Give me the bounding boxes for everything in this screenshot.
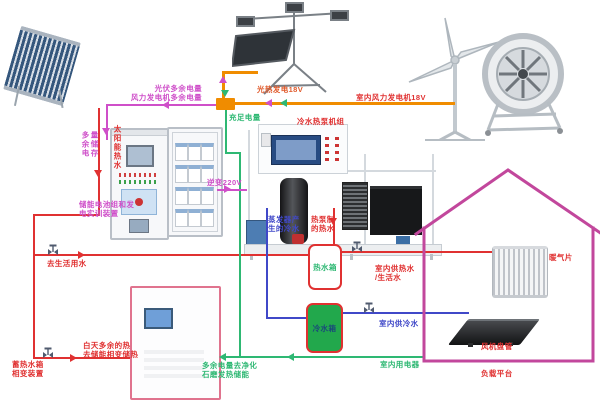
radiator bbox=[492, 246, 548, 298]
wind-source-fan bbox=[468, 26, 576, 138]
valve-icon bbox=[47, 243, 59, 257]
cabinet-small-screen bbox=[129, 219, 149, 233]
label-pv-wind-surplus: 光伏多余电量 风力发电机多余电量 bbox=[126, 84, 202, 102]
arrow-left-magenta bbox=[162, 101, 169, 109]
junction-box bbox=[216, 98, 235, 110]
label-inverter-220v: 逆变220V bbox=[207, 178, 242, 187]
panel-red-dot bbox=[135, 198, 143, 206]
phase-change-cabinet bbox=[130, 286, 221, 400]
wire-tracker-18v bbox=[222, 71, 258, 74]
arrow-down-magenta bbox=[102, 128, 110, 135]
label-heat-pump-unit: 冷水热泵机组 bbox=[297, 117, 344, 126]
label-indoor-appliances: 室内用电器 bbox=[380, 360, 420, 369]
cabinet-leds-green bbox=[119, 180, 159, 184]
arrow-right-red bbox=[70, 354, 77, 362]
label-indoor-hot-water: 室内供热水 /生活水 bbox=[375, 264, 415, 282]
label-load-platform: 负载平台 bbox=[481, 369, 513, 378]
pipe-solar-down bbox=[98, 108, 100, 215]
pcm-screen bbox=[144, 308, 173, 329]
bench-gauge bbox=[261, 133, 271, 147]
fan-coil-foot bbox=[468, 343, 473, 347]
arrow-left-green bbox=[219, 353, 226, 361]
label-radiator: 暖气片 bbox=[549, 253, 573, 262]
valve-icon bbox=[363, 301, 375, 315]
valve-icon bbox=[42, 346, 54, 360]
cabinet-screen bbox=[126, 145, 154, 167]
arrow-left-green bbox=[287, 353, 294, 361]
bench-buttons bbox=[335, 137, 339, 161]
battery-shelf bbox=[175, 140, 213, 160]
label-daytime-surplus-heat: 白天多余的热 去储能相变储热 bbox=[83, 341, 138, 359]
cold-water-tank: 冷水箱 bbox=[306, 303, 343, 353]
arrow-left-magenta bbox=[265, 99, 272, 107]
cold-water-tank-label: 冷水箱 bbox=[313, 324, 337, 333]
arrow-down-green bbox=[221, 90, 229, 97]
label-indoor-wind-18v: 室内风力发电机18V bbox=[356, 93, 426, 102]
label-evaporator-cold-water: 蒸发器产 生的冷水 bbox=[268, 215, 300, 233]
label-to-domestic-water: 去生活用水 bbox=[47, 259, 87, 268]
bench-screen bbox=[271, 135, 321, 165]
label-surplus-to-purify: 多余电量去净化 石磨发热储能 bbox=[202, 361, 257, 379]
pcm-vents bbox=[144, 348, 204, 378]
battery-shelf bbox=[175, 206, 213, 226]
blue-unit bbox=[246, 220, 268, 246]
label-solar-hot-water: 太阳能热水 bbox=[113, 125, 122, 185]
label-battery-device: 储能电池组和发 电实训装置 bbox=[79, 200, 134, 218]
label-thermal-storage-device: 蓄热水箱 相变装置 bbox=[12, 360, 44, 378]
red-pump bbox=[292, 234, 304, 244]
bench-leg bbox=[350, 254, 353, 260]
label-surplus-storage: 多余电量储存 bbox=[81, 131, 99, 160]
hot-water-tank-label: 热水箱 bbox=[313, 263, 337, 272]
valve-icon bbox=[351, 240, 363, 254]
arrow-right-red bbox=[78, 251, 85, 259]
wire-inverter-220v bbox=[217, 189, 247, 191]
hot-water-tank: 热水箱 bbox=[308, 244, 342, 290]
solar-collector bbox=[4, 28, 80, 110]
label-fan-coil: 风机盘管 bbox=[481, 342, 513, 351]
collector-tubes bbox=[3, 26, 81, 107]
label-sufficient-power: 充足电量 bbox=[229, 113, 261, 122]
pipe-solar-left-drop bbox=[33, 214, 35, 359]
arrow-left-green bbox=[280, 99, 287, 107]
wire-bottom bbox=[217, 356, 424, 358]
bench-buttons bbox=[325, 137, 329, 161]
label-heat-pump-hot-water: 热泵制 的热水 bbox=[311, 215, 335, 233]
pipe-cold-to-tank bbox=[266, 317, 308, 319]
cabinet-leds-red bbox=[119, 173, 159, 177]
battery-shelf bbox=[175, 184, 213, 204]
arrow-up-magenta bbox=[219, 76, 227, 83]
wire-sufficient-down bbox=[225, 110, 227, 153]
energy-system-diagram: 热水箱 冷水箱 太阳能热水 光伏多余电量 风力发电机多余电量 多余电量储存 储能… bbox=[0, 0, 600, 419]
label-pv-thermal-18v: 光热发电18V bbox=[257, 85, 303, 94]
bench-control-panel bbox=[258, 124, 348, 174]
arrow-down-red bbox=[94, 170, 102, 177]
label-indoor-cold-water: 室内供冷水 bbox=[379, 319, 419, 328]
condenser-coil bbox=[342, 182, 368, 230]
solar-tracker bbox=[232, 2, 362, 97]
